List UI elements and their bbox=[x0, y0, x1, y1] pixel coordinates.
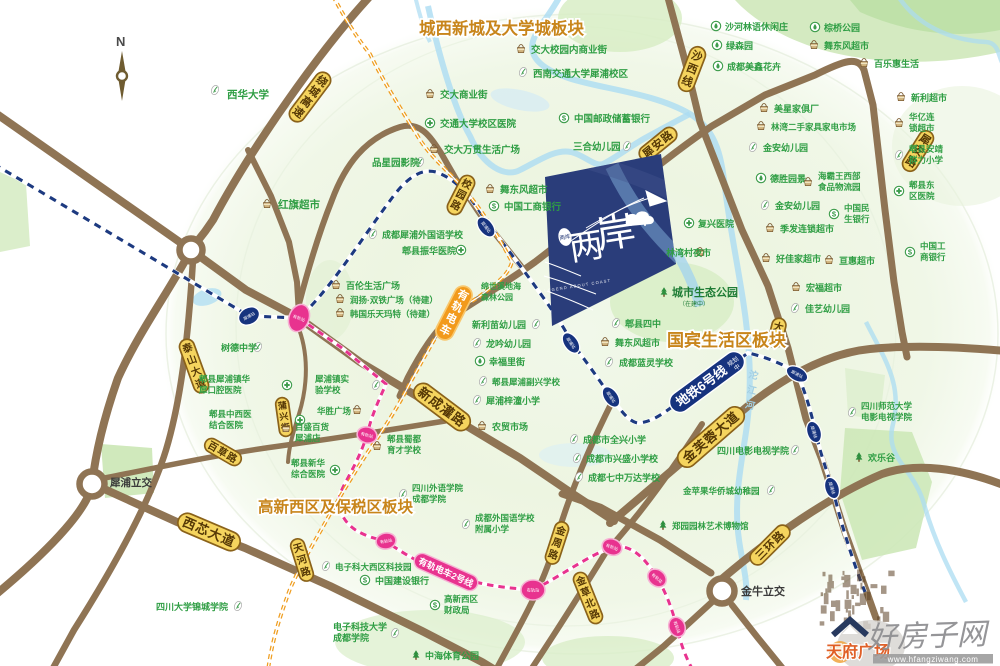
svg-text:成都外国语学校: 成都外国语学校 bbox=[475, 513, 535, 523]
svg-text:郫县振华医院: 郫县振华医院 bbox=[402, 245, 456, 256]
svg-text:郫县蜀都: 郫县蜀都 bbox=[387, 434, 422, 444]
svg-text:交大商业街: 交大商业街 bbox=[440, 89, 488, 101]
svg-text:棕桥公园: 棕桥公园 bbox=[823, 22, 860, 33]
svg-text:复兴医院: 复兴医院 bbox=[697, 218, 734, 229]
svg-text:舞东风超市: 舞东风超市 bbox=[500, 184, 548, 196]
svg-text:郫县犀浦副兴学校: 郫县犀浦副兴学校 bbox=[492, 377, 561, 387]
svg-text:成都市兴盛小学校: 成都市兴盛小学校 bbox=[586, 453, 659, 464]
svg-text:好房子网: 好房子网 bbox=[866, 618, 991, 655]
svg-text:百盛百货: 百盛百货 bbox=[295, 422, 330, 432]
svg-text:季发连锁超市: 季发连锁超市 bbox=[779, 223, 834, 234]
svg-text:结合医院: 结合医院 bbox=[209, 420, 244, 430]
svg-text:郫县安靖: 郫县安靖 bbox=[909, 144, 944, 154]
svg-text:金苹果华侨城幼稚园: 金苹果华侨城幼稚园 bbox=[682, 486, 760, 496]
svg-text:绵世溪地海: 绵世溪地海 bbox=[480, 281, 521, 291]
svg-text:中国民: 中国民 bbox=[844, 203, 870, 213]
svg-text:国宾生活区板块: 国宾生活区板块 bbox=[667, 330, 787, 350]
svg-text:欢乐谷: 欢乐谷 bbox=[867, 452, 896, 463]
svg-text:中国工商银行: 中国工商银行 bbox=[504, 201, 562, 213]
svg-text:舞东风超市: 舞东风超市 bbox=[824, 40, 869, 51]
svg-text:城西新城及大学城板块: 城西新城及大学城板块 bbox=[419, 18, 585, 38]
svg-text:电子科技大学: 电子科技大学 bbox=[333, 621, 387, 632]
svg-text:交大万贯生活广场: 交大万贯生活广场 bbox=[444, 144, 521, 156]
svg-text:食品物流园: 食品物流园 bbox=[818, 182, 861, 192]
svg-text:商银行: 商银行 bbox=[920, 252, 946, 262]
svg-text:成都美鑫花卉: 成都美鑫花卉 bbox=[727, 61, 781, 72]
svg-text:电子科大西区科技园: 电子科大西区科技园 bbox=[335, 562, 412, 572]
svg-text:郫县新华: 郫县新华 bbox=[291, 458, 326, 468]
svg-text:兴: 兴 bbox=[279, 410, 289, 422]
svg-text:龙吟幼儿园: 龙吟幼儿园 bbox=[485, 338, 531, 349]
svg-text:郫县犀浦镇华: 郫县犀浦镇华 bbox=[199, 374, 251, 384]
svg-text:金安幼儿园: 金安幼儿园 bbox=[762, 142, 808, 153]
svg-text:韩国乐天玛特（待建）: 韩国乐天玛特（待建） bbox=[350, 309, 435, 319]
svg-text:新利超市: 新利超市 bbox=[911, 92, 947, 103]
svg-text:郑园园林艺术博物馆: 郑园园林艺术博物馆 bbox=[672, 521, 749, 531]
svg-text:郫县中西医: 郫县中西医 bbox=[209, 409, 252, 419]
svg-text:中国建设银行: 中国建设银行 bbox=[375, 575, 429, 586]
svg-text:沙河林语休闲庄: 沙河林语休闲庄 bbox=[725, 21, 788, 32]
svg-text:有轨站: 有轨站 bbox=[527, 587, 540, 594]
svg-text:亘惠超市: 亘惠超市 bbox=[839, 255, 875, 266]
svg-text:德胜园景: 德胜园景 bbox=[770, 173, 806, 184]
svg-text:综合医院: 综合医院 bbox=[291, 469, 326, 479]
svg-text:品星园影院: 品星园影院 bbox=[372, 157, 420, 169]
svg-text:林湾二手家具家电市场: 林湾二手家具家电市场 bbox=[771, 122, 857, 132]
svg-text:犀浦镇实: 犀浦镇实 bbox=[314, 374, 350, 384]
svg-text:成都市全兴小学: 成都市全兴小学 bbox=[583, 434, 646, 445]
svg-text:群力小学: 群力小学 bbox=[908, 155, 944, 165]
svg-text:犀口腔医院: 犀口腔医院 bbox=[198, 385, 242, 395]
svg-text:三合幼儿园: 三合幼儿园 bbox=[573, 141, 621, 153]
svg-text:森林公园: 森林公园 bbox=[481, 292, 513, 302]
svg-text:宏福超市: 宏福超市 bbox=[806, 282, 842, 293]
svg-text:佳艺幼儿园: 佳艺幼儿园 bbox=[805, 303, 850, 314]
svg-text:金安幼儿园: 金安幼儿园 bbox=[774, 200, 820, 211]
svg-text:犀浦梓潼小学: 犀浦梓潼小学 bbox=[485, 395, 540, 406]
svg-text:林湾村夜市: 林湾村夜市 bbox=[666, 247, 711, 258]
svg-text:高新西区及保税区板块: 高新西区及保税区板块 bbox=[258, 497, 414, 516]
svg-text:西华大学: 西华大学 bbox=[227, 88, 269, 101]
svg-text:海霸王西部: 海霸王西部 bbox=[818, 171, 861, 181]
svg-text:岸: 岸 bbox=[593, 209, 638, 258]
svg-text:（在建中）: （在建中） bbox=[679, 300, 709, 308]
svg-text:郫县四中: 郫县四中 bbox=[625, 318, 661, 329]
svg-text:育才学校: 育才学校 bbox=[387, 445, 422, 455]
svg-text:四川师范大学: 四川师范大学 bbox=[861, 401, 913, 411]
svg-text:百伦生活广场: 百伦生活广场 bbox=[346, 280, 400, 291]
svg-text:四川大学锦城学院: 四川大学锦城学院 bbox=[156, 601, 228, 612]
svg-text:财政局: 财政局 bbox=[443, 605, 470, 615]
svg-text:幸福里街: 幸福里街 bbox=[489, 356, 525, 367]
svg-text:中国工: 中国工 bbox=[920, 241, 946, 251]
svg-text:金牛立交: 金牛立交 bbox=[740, 584, 785, 598]
svg-text:中海体育公园: 中海体育公园 bbox=[425, 650, 479, 661]
svg-text:华亿连: 华亿连 bbox=[909, 112, 935, 122]
svg-text:郫县东: 郫县东 bbox=[909, 180, 935, 190]
svg-text:舞东风超市: 舞东风超市 bbox=[615, 337, 660, 348]
svg-text:红旗超市: 红旗超市 bbox=[278, 198, 320, 211]
svg-text:美星家俱厂: 美星家俱厂 bbox=[774, 103, 819, 114]
svg-text:成都学院: 成都学院 bbox=[333, 632, 369, 643]
svg-text:www.hfangziwang.com: www.hfangziwang.com bbox=[887, 655, 979, 664]
svg-text:成都蓝灵学校: 成都蓝灵学校 bbox=[619, 357, 674, 368]
svg-text:附属小学: 附属小学 bbox=[475, 524, 510, 534]
svg-text:区医院: 区医院 bbox=[909, 191, 935, 201]
svg-text:西南交通大学犀浦校区: 西南交通大学犀浦校区 bbox=[533, 68, 629, 80]
svg-text:农贸市场: 农贸市场 bbox=[491, 421, 528, 432]
svg-text:N: N bbox=[116, 34, 125, 49]
svg-text:交大校园内商业街: 交大校园内商业街 bbox=[531, 44, 608, 56]
svg-text:百乐惠生活: 百乐惠生活 bbox=[874, 58, 919, 69]
svg-text:四川外语学院: 四川外语学院 bbox=[412, 483, 464, 493]
svg-text:成都学院: 成都学院 bbox=[412, 494, 447, 504]
svg-text:锁超市: 锁超市 bbox=[909, 123, 935, 133]
svg-text:验学校: 验学校 bbox=[315, 385, 341, 395]
svg-text:蒲: 蒲 bbox=[277, 399, 287, 411]
svg-text:四川电影电视学院: 四川电影电视学院 bbox=[717, 445, 789, 456]
svg-text:润扬·双铁广场（待建）: 润扬·双铁广场（待建） bbox=[350, 295, 438, 305]
svg-text:新利苗幼儿园: 新利苗幼儿园 bbox=[472, 319, 526, 330]
svg-text:成都犀浦外国语学校: 成都犀浦外国语学校 bbox=[382, 229, 464, 240]
svg-text:电影电视学院: 电影电视学院 bbox=[861, 412, 913, 422]
svg-text:交通大学校区医院: 交通大学校区医院 bbox=[440, 118, 517, 130]
svg-text:绿森园: 绿森园 bbox=[726, 40, 753, 51]
svg-text:高新西区: 高新西区 bbox=[444, 594, 479, 604]
svg-text:犀浦立交: 犀浦立交 bbox=[109, 476, 152, 489]
svg-text:城市生态公园: 城市生态公园 bbox=[672, 285, 738, 299]
svg-text:华胜广场: 华胜广场 bbox=[317, 406, 352, 416]
svg-text:犀浦店: 犀浦店 bbox=[294, 433, 321, 443]
svg-text:树德中学: 树德中学 bbox=[221, 342, 257, 353]
svg-text:生银行: 生银行 bbox=[844, 214, 870, 224]
svg-text:成都七中万达学校: 成都七中万达学校 bbox=[588, 472, 661, 483]
svg-text:中国邮政储蓄银行: 中国邮政储蓄银行 bbox=[574, 113, 651, 125]
svg-text:好佳家超市: 好佳家超市 bbox=[775, 253, 821, 264]
